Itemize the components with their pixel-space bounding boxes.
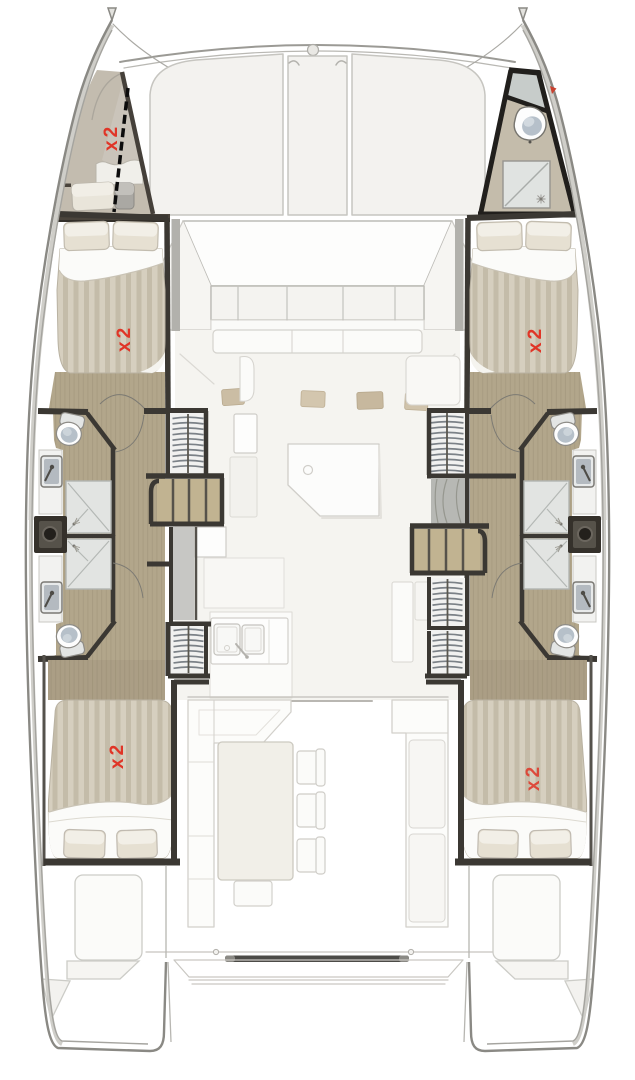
svg-text:x2: x2 (107, 742, 128, 769)
svg-text:x2: x2 (525, 326, 546, 353)
svg-text:x2: x2 (523, 764, 544, 791)
svg-text:x2: x2 (101, 124, 122, 151)
svg-text:x2: x2 (114, 325, 135, 352)
